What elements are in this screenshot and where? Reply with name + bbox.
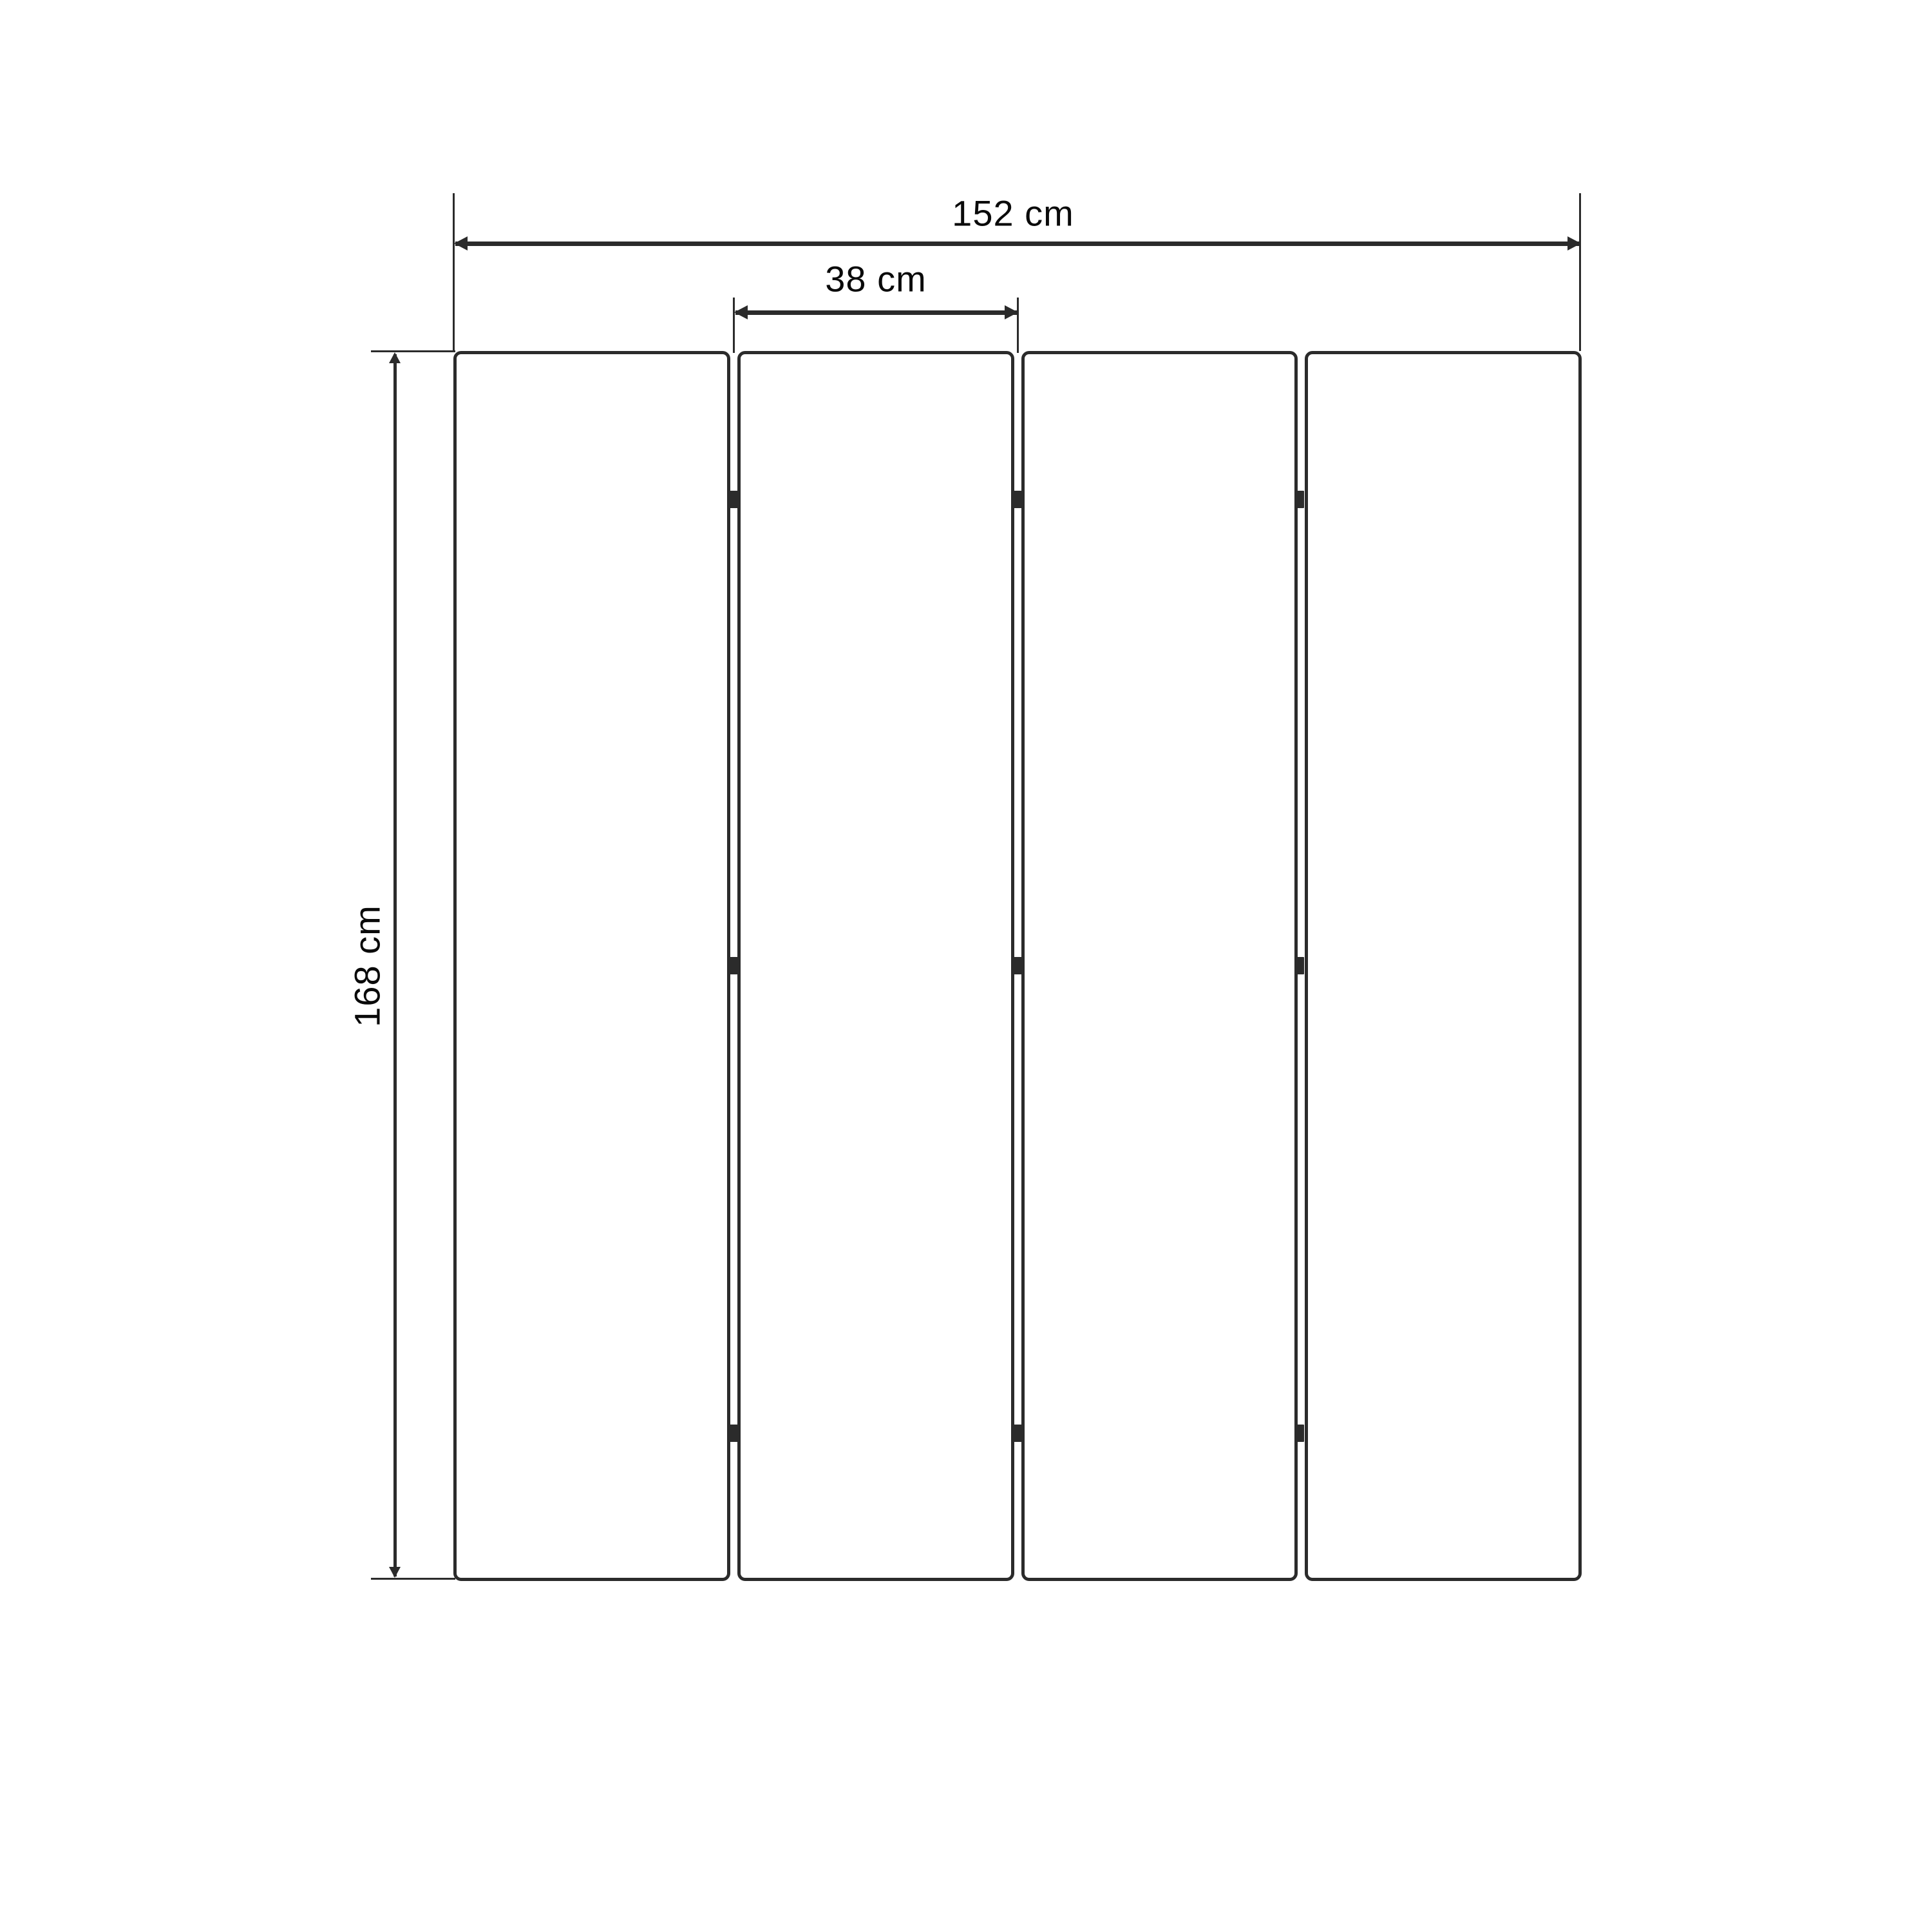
hinge-gap2-middle <box>1014 957 1022 974</box>
panel-4 <box>1305 351 1582 1581</box>
hinge-gap1-bottom <box>730 1425 738 1442</box>
panel-1 <box>453 351 730 1581</box>
panel-width-arrowhead-left-icon <box>734 305 748 319</box>
total-width-extension-line-right <box>1579 193 1581 351</box>
hinge-gap2-bottom <box>1014 1425 1022 1442</box>
total-width-arrowhead-left-icon <box>454 236 468 251</box>
height-tick-line-top <box>371 350 455 352</box>
panel-3 <box>1021 351 1298 1581</box>
hinge-gap1-middle <box>730 957 738 974</box>
panel-width-dimension-label: 38 cm <box>825 258 927 300</box>
height-tick-line-bottom <box>371 1578 455 1580</box>
height-arrowhead-top-icon <box>389 352 401 363</box>
hinge-gap2-top <box>1014 491 1022 508</box>
panel-width-arrowhead-right-icon <box>1005 305 1018 319</box>
panel-2 <box>737 351 1014 1581</box>
hinge-gap1-top <box>730 491 738 508</box>
height-arrowhead-bottom-icon <box>389 1567 401 1578</box>
total-width-extension-line-left <box>453 193 455 351</box>
drawing-canvas: 152 cm 38 cm 168 cm <box>0 0 1932 1932</box>
total-width-dimension-label: 152 cm <box>952 193 1074 234</box>
panel-width-dimension-line <box>735 310 1017 315</box>
height-dimension-label: 168 cm <box>346 905 388 1027</box>
total-width-dimension-line <box>455 241 1580 246</box>
hinge-gap3-top <box>1296 491 1304 508</box>
hinge-gap3-bottom <box>1296 1425 1304 1442</box>
hinge-gap3-middle <box>1296 957 1304 974</box>
height-dimension-line <box>393 354 397 1577</box>
total-width-arrowhead-right-icon <box>1567 236 1581 251</box>
